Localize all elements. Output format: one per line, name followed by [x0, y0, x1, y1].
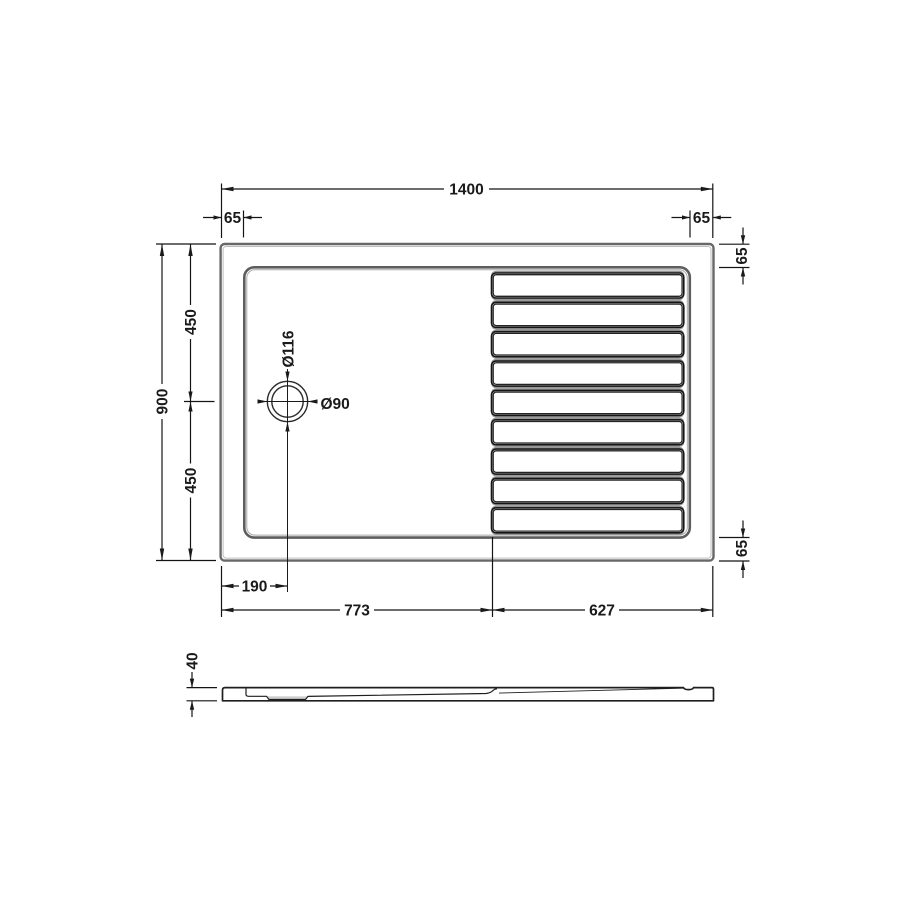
- svg-text:773: 773: [344, 603, 370, 620]
- svg-text:Ø116: Ø116: [281, 330, 298, 367]
- svg-text:450: 450: [183, 468, 200, 494]
- svg-text:900: 900: [155, 389, 172, 415]
- svg-text:65: 65: [224, 210, 242, 227]
- svg-text:627: 627: [589, 603, 615, 620]
- svg-text:65: 65: [734, 247, 751, 265]
- svg-text:190: 190: [242, 579, 268, 596]
- svg-text:65: 65: [734, 540, 751, 558]
- svg-text:40: 40: [185, 652, 202, 669]
- svg-text:1400: 1400: [449, 182, 483, 199]
- svg-text:65: 65: [693, 210, 711, 227]
- svg-text:Ø90: Ø90: [321, 396, 350, 413]
- svg-text:450: 450: [183, 309, 200, 335]
